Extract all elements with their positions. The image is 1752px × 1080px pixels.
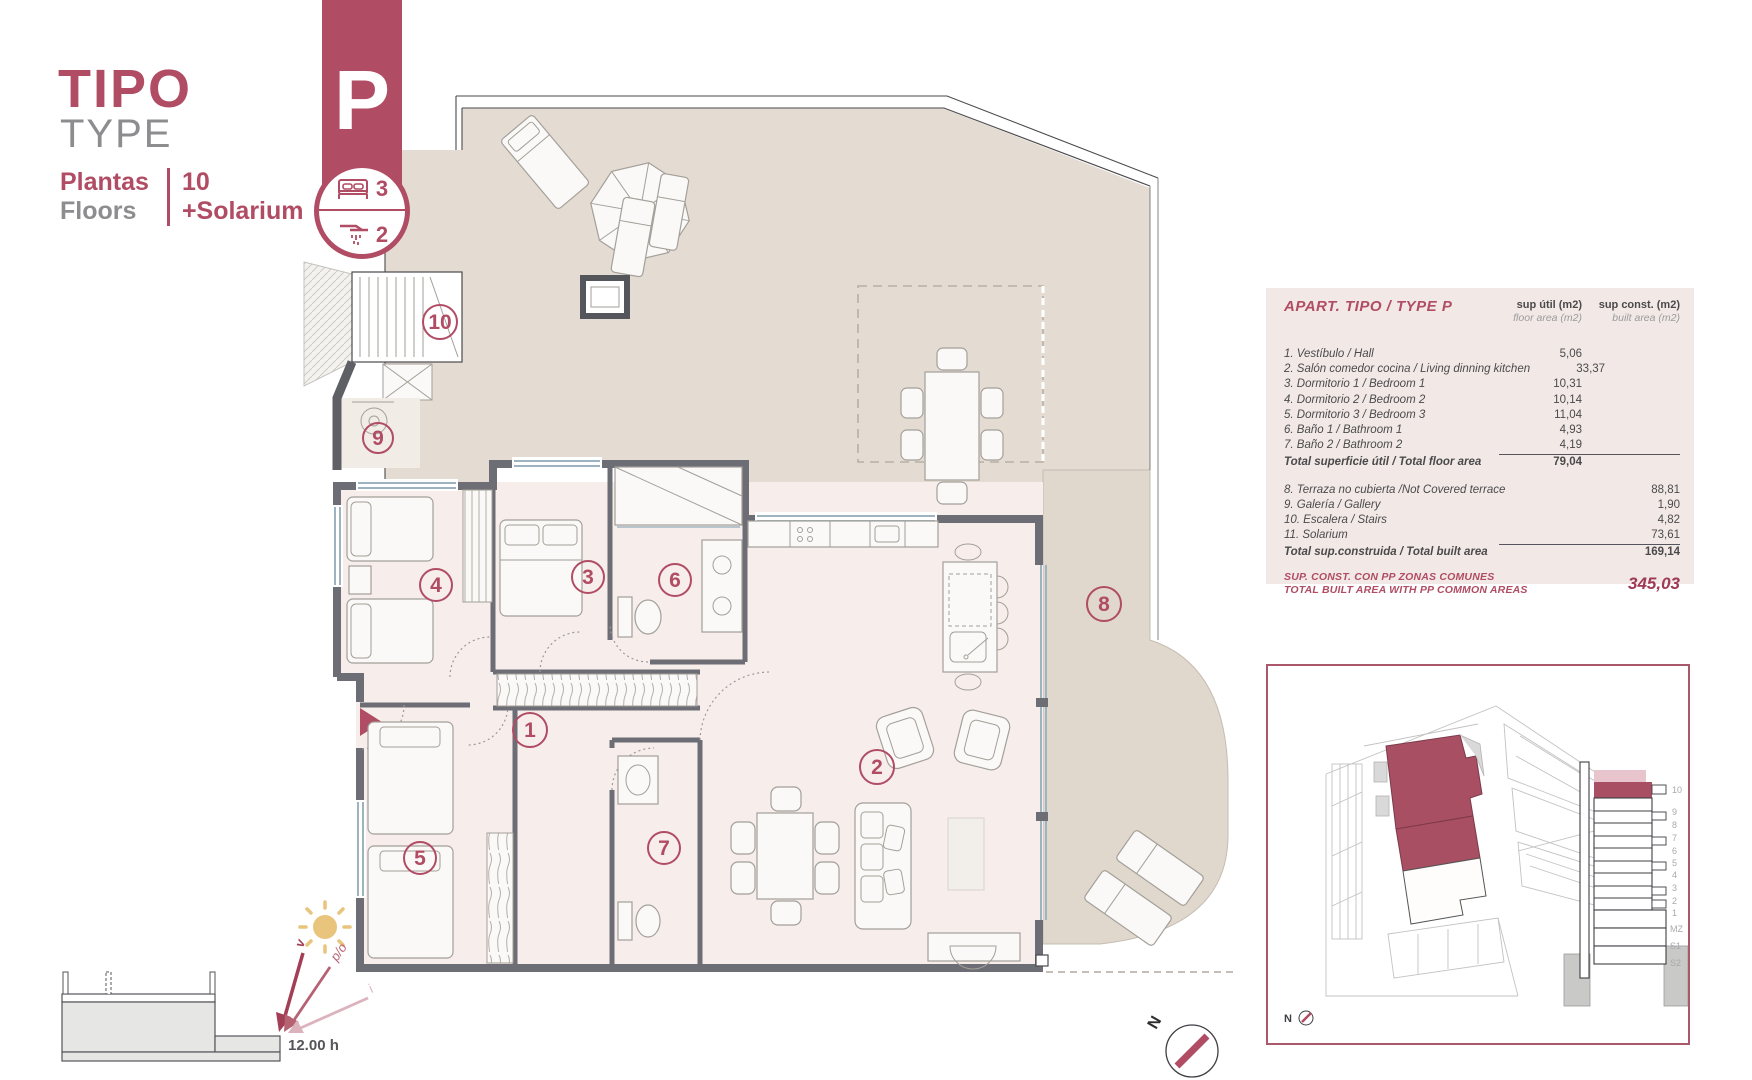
building-elevation: 10 9 8 7 6 5 4 3 2 1 MZ S1 S2 (1564, 762, 1688, 1006)
divider (167, 168, 170, 226)
site-north-marker: N (1284, 1011, 1313, 1025)
floors-info: Plantas Floors 10 +Solarium (60, 168, 304, 226)
floors-value: 10 (182, 168, 304, 197)
summary-line-2: TOTAL BUILT AREA WITH PP COMMON AREAS (1284, 584, 1628, 597)
floor-label: 3 (1672, 883, 1677, 893)
table-row: 11. Solarium73,61 (1284, 528, 1680, 543)
skylight (583, 278, 627, 316)
room-label-1: 1 (524, 719, 536, 742)
type-letter: P (322, 52, 402, 149)
room-label-3: 3 (582, 566, 594, 589)
page-title: TIPO (58, 58, 192, 120)
compass-north-label: N (1145, 1013, 1166, 1032)
area-table-header: sup útil (m2) floor area (m2) sup const.… (1284, 299, 1680, 325)
floor-label: 4 (1672, 870, 1677, 880)
col-floor-sub: floor area (m2) (1484, 312, 1582, 325)
room-label-6: 6 (669, 569, 681, 592)
table-row: 2. Salón comedor cocina / Living dinning… (1284, 362, 1680, 377)
table-row: 1. Vestíbulo / Hall5,06 (1284, 347, 1680, 362)
shower-icon (336, 220, 370, 250)
floors-label-en: Floors (60, 197, 149, 226)
table-row: 3. Dormitorio 1 / Bedroom 110,31 (1284, 377, 1680, 392)
site-plan-panel: N 10 9 8 7 6 (1266, 664, 1690, 1045)
col-built-title: sup const. (m2) (1582, 299, 1680, 312)
floor-label: 2 (1672, 896, 1677, 906)
floors-label-es: Plantas (60, 168, 149, 197)
room-label-7: 7 (658, 837, 670, 860)
area-table: APART. TIPO / TYPE P sup útil (m2) floor… (1266, 288, 1694, 584)
table-total-row: Total sup.construida / Total built area1… (1284, 545, 1680, 560)
room-label-4: 4 (430, 574, 442, 597)
room-label-9: 9 (372, 427, 384, 450)
summary-value: 345,03 (1628, 574, 1680, 594)
floor-label: 8 (1672, 820, 1677, 830)
bedroom-count: 3 (376, 176, 388, 202)
compass: N (1145, 1013, 1218, 1077)
table-summary: SUP. CONST. CON PP ZONAS COMUNES TOTAL B… (1284, 571, 1680, 597)
rooms-badge: 3 2 (314, 163, 410, 259)
floors-extra: +Solarium (182, 197, 304, 226)
table-row: 6. Baño 1 / Bathroom 14,93 (1284, 423, 1680, 438)
floor-label: MZ (1670, 924, 1683, 934)
floor-label: 6 (1672, 846, 1677, 856)
sun-section-diagram: v p/o i 12.00 h (62, 902, 377, 1061)
summary-line-1: SUP. CONST. CON PP ZONAS COMUNES (1284, 571, 1628, 584)
sun-arrow-v-label: v (292, 937, 309, 949)
floor-label: 1 (1672, 908, 1677, 918)
room-label-5: 5 (414, 847, 426, 870)
table-row: 4. Dormitorio 2 / Bedroom 210,14 (1284, 393, 1680, 408)
table-row: 7. Baño 2 / Bathroom 24,19 (1284, 438, 1680, 453)
bed-icon (336, 176, 370, 202)
floor-label: 7 (1672, 833, 1677, 843)
table-row: 8. Terraza no cubierta /Not Covered terr… (1284, 483, 1680, 498)
floor-label: 5 (1672, 858, 1677, 868)
room-label-10: 10 (428, 311, 451, 334)
bathroom-count: 2 (376, 222, 388, 248)
site-plan-drawing (1326, 706, 1613, 996)
room-label-8: 8 (1098, 593, 1110, 616)
table-row: 9. Galería / Gallery1,90 (1284, 498, 1680, 513)
svg-text:N: N (1284, 1013, 1292, 1025)
floor-label: S2 (1670, 958, 1681, 968)
sun-time-label: 12.00 h (288, 1037, 339, 1054)
table-row: 10. Escalera / Stairs4,82 (1284, 513, 1680, 528)
floor-label: 10 (1672, 785, 1682, 795)
page-subtitle: TYPE (60, 112, 172, 157)
floor-label: S1 (1670, 941, 1681, 951)
table-row: 5. Dormitorio 3 / Bedroom 311,04 (1284, 408, 1680, 423)
hall-closet (497, 674, 697, 706)
sun-arrow-i-label: i (365, 981, 377, 996)
floor-label: 9 (1672, 807, 1677, 817)
room-label-2: 2 (871, 756, 883, 779)
sun-arrow-po-label: p/o (327, 940, 350, 964)
col-floor-title: sup útil (m2) (1484, 299, 1582, 312)
table-total-row: Total superficie útil / Total floor area… (1284, 455, 1680, 470)
sun-icon (313, 915, 337, 939)
col-built-sub: built area (m2) (1582, 312, 1680, 325)
bedroom-1-furniture (500, 520, 582, 616)
